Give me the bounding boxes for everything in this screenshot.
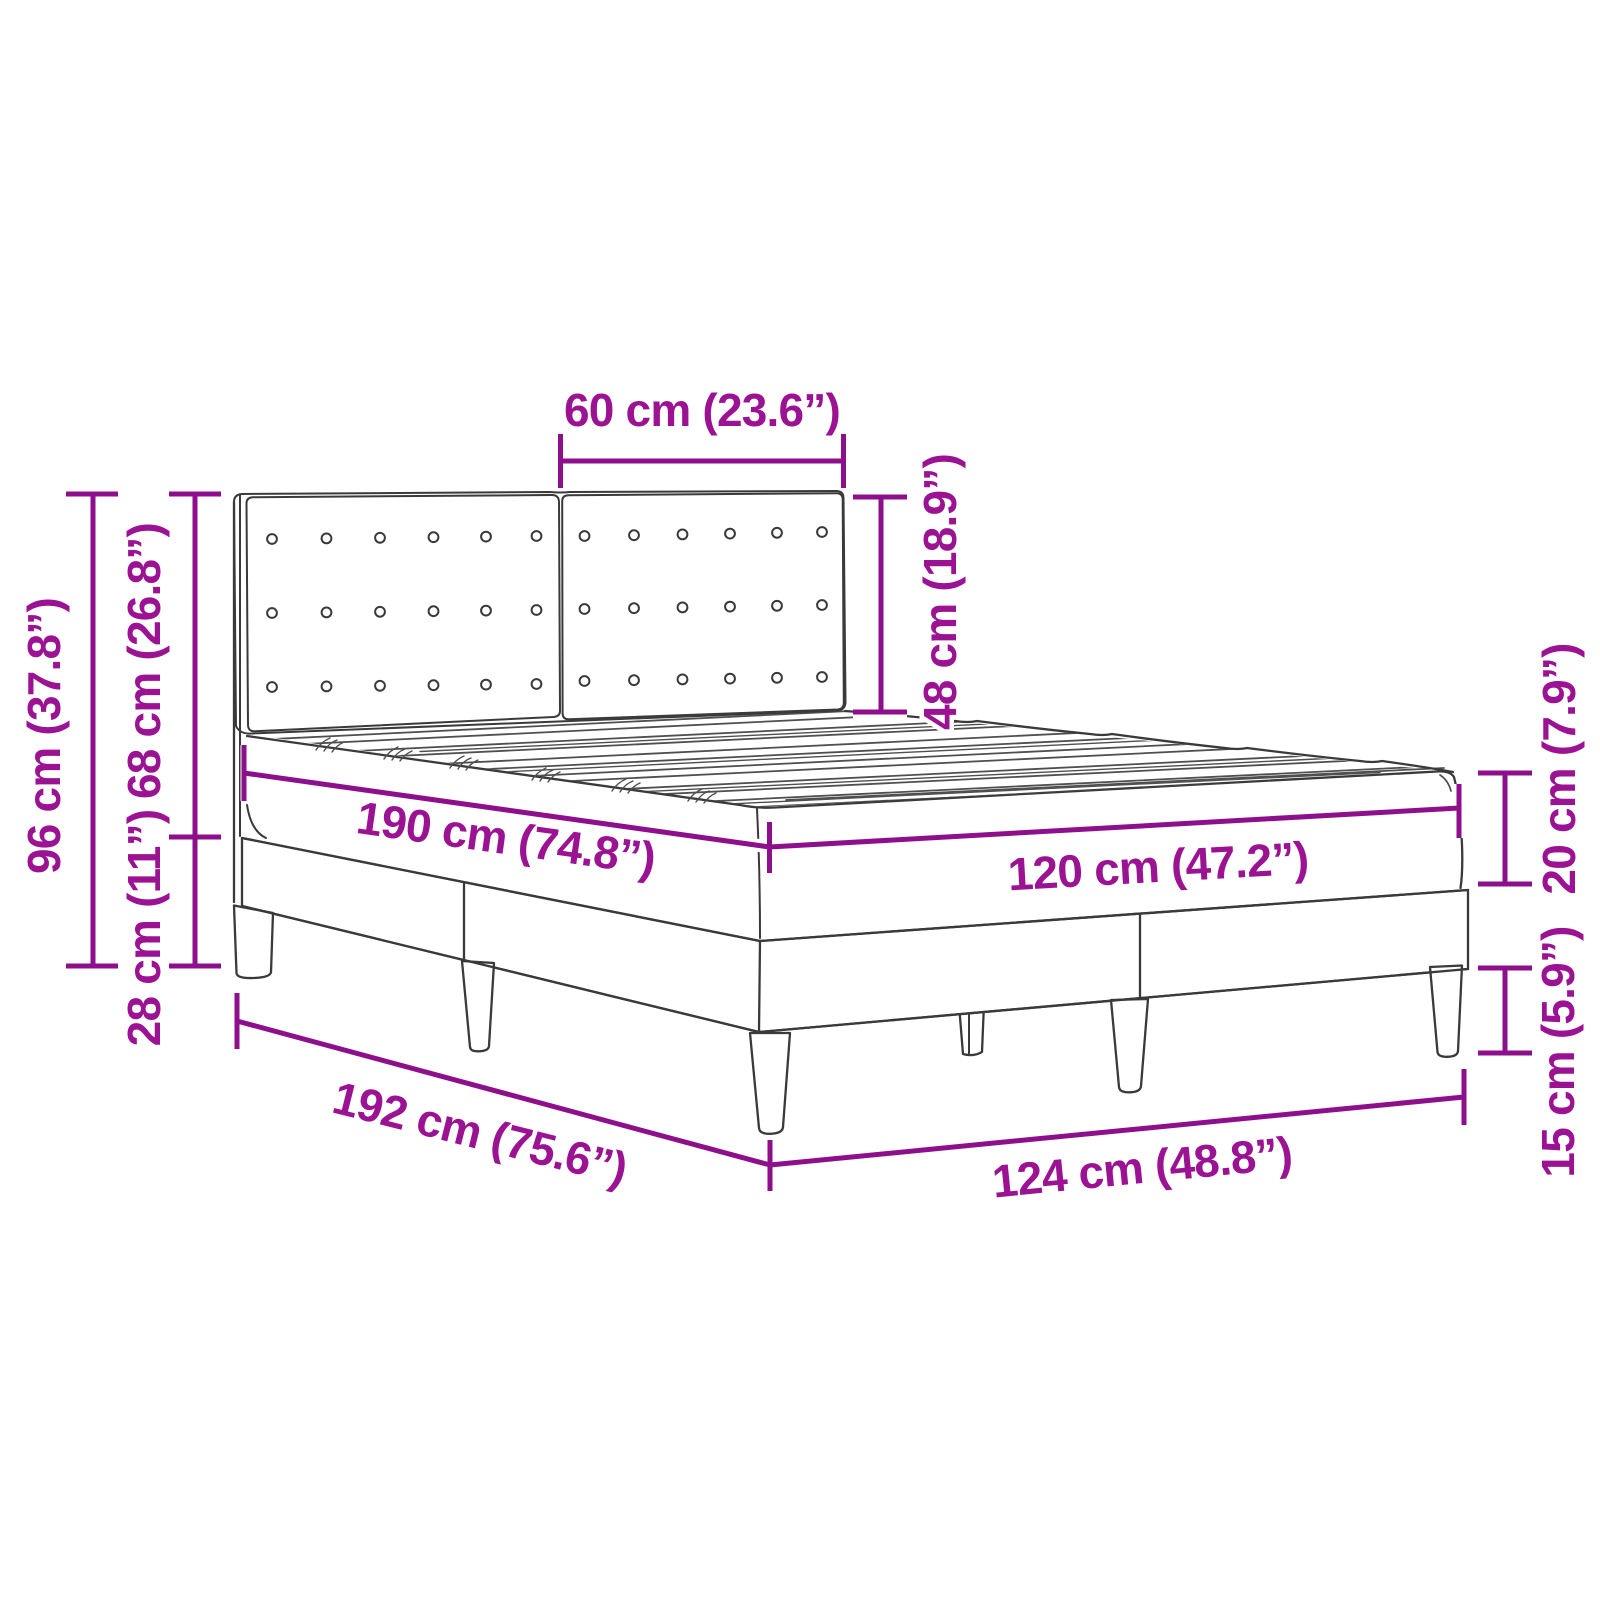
svg-text:60 cm (23.6”): 60 cm (23.6”) bbox=[564, 384, 840, 436]
svg-text:48 cm (18.9”): 48 cm (18.9”) bbox=[914, 454, 966, 730]
svg-text:68 cm (26.8”): 68 cm (26.8”) bbox=[118, 523, 170, 799]
svg-text:96 cm (37.8”): 96 cm (37.8”) bbox=[18, 598, 70, 874]
svg-text:28 cm (11”): 28 cm (11”) bbox=[118, 810, 170, 1047]
svg-text:20 cm (7.9”): 20 cm (7.9”) bbox=[1533, 643, 1585, 894]
svg-text:15 cm (5.9”): 15 cm (5.9”) bbox=[1532, 926, 1584, 1177]
